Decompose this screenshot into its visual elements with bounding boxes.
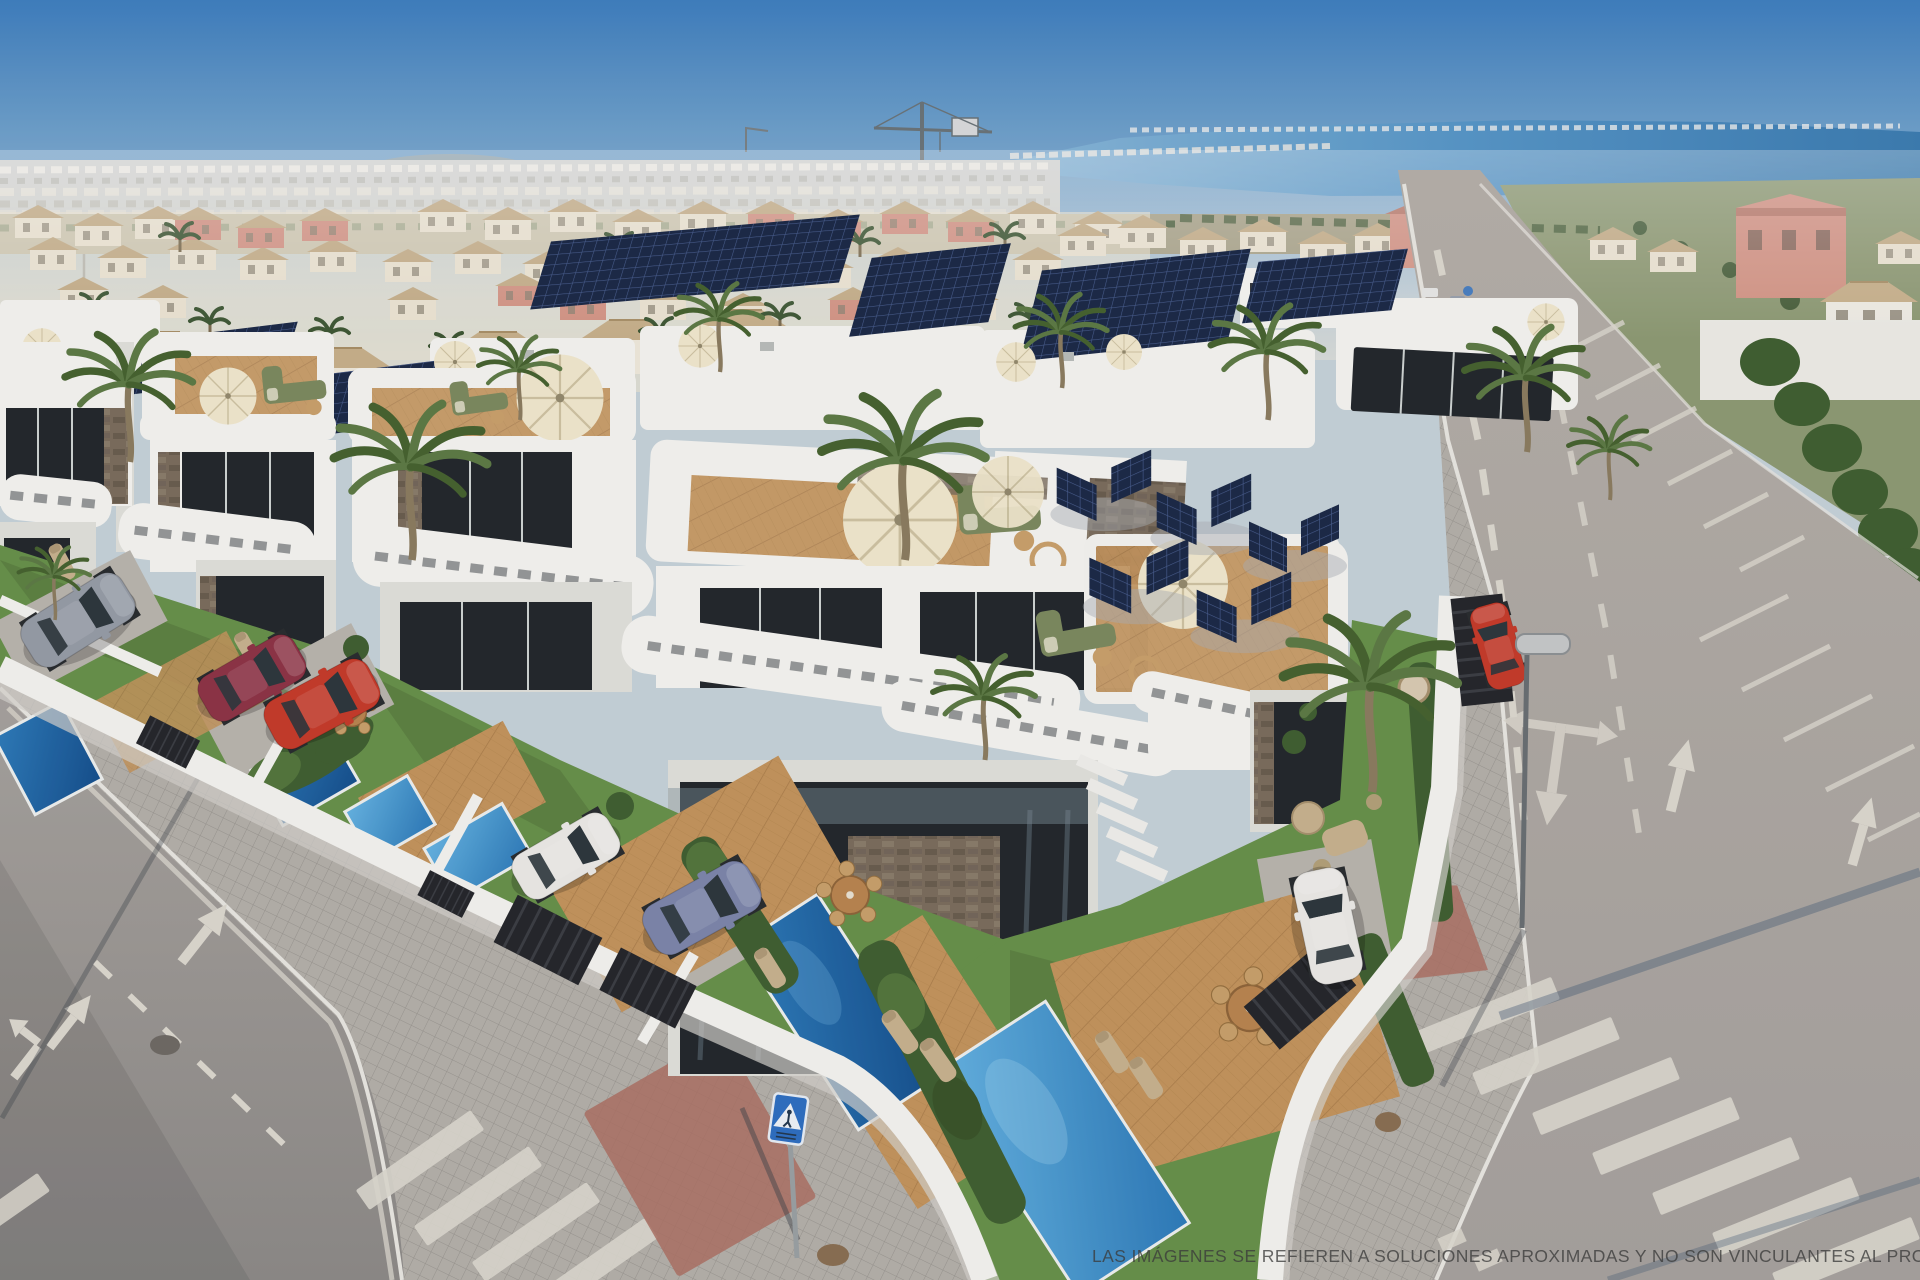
render-canvas: LAS IMÁGENES SE REFIEREN A SOLUCIONES AP… [0,0,1920,1280]
disclaimer-text: LAS IMÁGENES SE REFIEREN A SOLUCIONES AP… [1092,1246,1920,1266]
aerial-render: LAS IMÁGENES SE REFIEREN A SOLUCIONES AP… [0,0,1920,1280]
